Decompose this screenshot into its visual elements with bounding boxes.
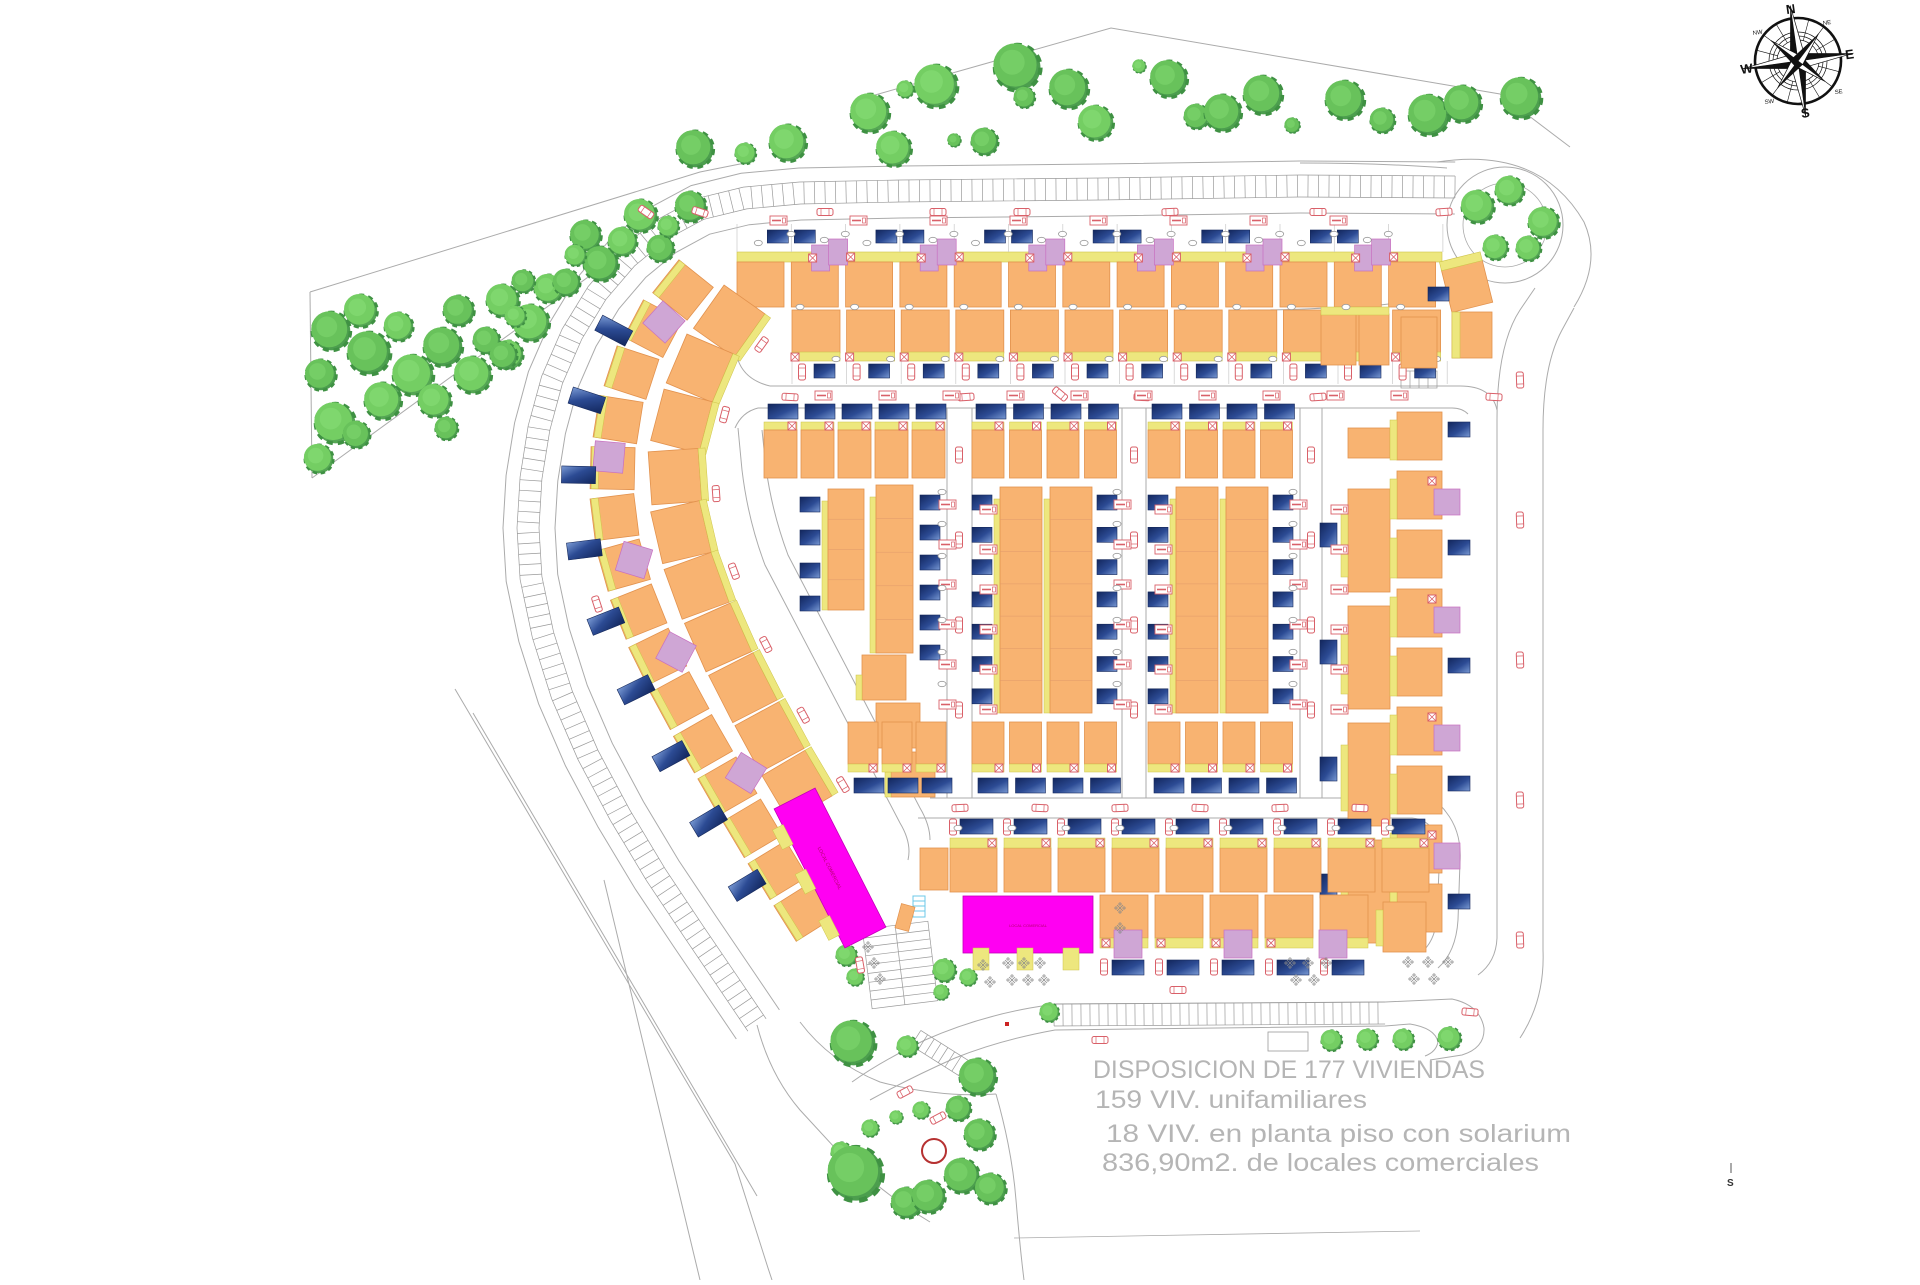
svg-text:18 VIV. en planta piso co: 18 VIV. en planta piso con solarium	[1106, 1120, 1571, 1148]
svg-text:DISPOSICION DE 177 VIVIENDA: DISPOSICION DE 177 VIVIENDAS	[1093, 1056, 1485, 1084]
svg-text:159 VIV. unifamiliares: 159 VIV. unifamiliares	[1095, 1086, 1367, 1114]
svg-text:S: S	[1727, 1178, 1734, 1189]
svg-text:836,90m2. de locales comerc: 836,90m2. de locales comerciales	[1102, 1149, 1539, 1177]
svg-text:SE: SE	[1834, 89, 1843, 96]
svg-text:NE: NE	[1823, 20, 1832, 27]
svg-text:LOCAL COMERCIAL: LOCAL COMERCIAL	[1009, 923, 1048, 928]
